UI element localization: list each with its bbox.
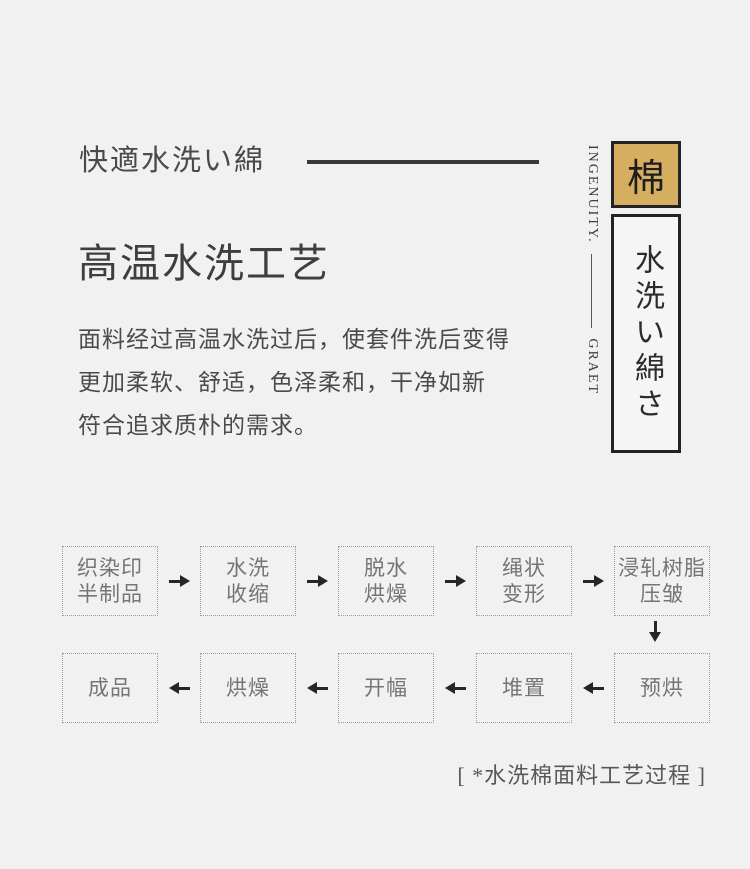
arrow-left-icon — [434, 682, 476, 694]
flow-step-line: 成品 — [88, 675, 132, 701]
flow-step-prebake: 预烘 — [614, 653, 710, 723]
flow-step-line: 烘燥 — [364, 581, 408, 607]
arrow-shaft — [455, 687, 466, 690]
flow-step-line: 烘燥 — [226, 675, 270, 701]
flow-step-line: 压皱 — [640, 581, 684, 607]
flow-caption: [ *水洗棉面料工艺过程 ] — [0, 758, 706, 790]
paragraph-line-3: 符合追求质朴的需求。 — [78, 404, 510, 447]
flow-step-resin-crease: 浸轧树脂 压皱 — [614, 546, 710, 616]
flow-step-dewater-dry: 脱水 烘燥 — [338, 546, 434, 616]
flow-step-wash-shrink: 水洗 收缩 — [200, 546, 296, 616]
vertical-label-text: 水洗い綿さ — [624, 244, 668, 424]
arrow-shaft — [445, 580, 456, 583]
arrow-head — [318, 575, 328, 587]
arrow-shaft — [583, 580, 594, 583]
tagline-word-graet: GRAET — [584, 338, 600, 395]
flow-step-finished-product: 成品 — [62, 653, 158, 723]
tagline-divider-line — [592, 254, 593, 329]
cotton-badge: 棉 — [611, 141, 681, 208]
arrow-right-icon — [572, 575, 614, 587]
vertical-label-box: 水洗い綿さ — [611, 214, 681, 453]
vertical-english-tagline: INGENUITY. GRAET — [582, 145, 602, 395]
arrow-head — [594, 575, 604, 587]
flow-step-line: 变形 — [502, 581, 546, 607]
product-detail-section: 快適水洗い綿 INGENUITY. GRAET 棉 水洗い綿さ 高温水洗工艺 面… — [0, 0, 750, 869]
section-subtitle-japanese: 快適水洗い綿 — [79, 144, 265, 178]
process-flow-top-row: 织染印 半制品 水洗 收缩 脱水 烘燥 绳状 变形 浸轧树脂 压皱 — [62, 546, 710, 616]
arrow-left-icon — [158, 682, 200, 694]
arrow-left-icon — [572, 682, 614, 694]
flow-step-line: 绳状 — [502, 555, 546, 581]
arrow-shaft — [169, 580, 180, 583]
arrow-head — [583, 682, 593, 694]
arrow-right-icon — [158, 575, 200, 587]
description-paragraph: 面料经过高温水洗过后，使套件洗后变得 更加柔软、舒适，色泽柔和，干净如新 符合追… — [78, 318, 510, 447]
arrow-head — [180, 575, 190, 587]
arrow-shaft — [307, 580, 318, 583]
flow-step-line: 堆置 — [502, 675, 546, 701]
tagline-word-ingenuity: INGENUITY. — [584, 145, 600, 244]
arrow-head — [445, 682, 455, 694]
cotton-badge-char: 棉 — [627, 147, 665, 202]
flow-step-open-width: 开幅 — [338, 653, 434, 723]
arrow-head — [456, 575, 466, 587]
arrow-head — [169, 682, 179, 694]
flow-step-line: 收缩 — [226, 581, 270, 607]
flow-step-line: 浸轧树脂 — [618, 555, 706, 581]
arrow-head — [307, 682, 317, 694]
flow-step-semi-finished: 织染印 半制品 — [62, 546, 158, 616]
flow-step-line: 织染印 — [77, 555, 143, 581]
arrow-down-icon — [649, 621, 661, 642]
paragraph-line-1: 面料经过高温水洗过后，使套件洗后变得 — [78, 318, 510, 361]
paragraph-line-2: 更加柔软、舒适，色泽柔和，干净如新 — [78, 361, 510, 404]
section-title: 高温水洗工艺 — [78, 240, 330, 288]
arrow-shaft — [593, 687, 604, 690]
flow-step-line: 预烘 — [640, 675, 684, 701]
flow-step-rope-deform: 绳状 变形 — [476, 546, 572, 616]
arrow-right-icon — [296, 575, 338, 587]
decorative-rule — [307, 160, 539, 164]
flow-step-drying: 烘燥 — [200, 653, 296, 723]
flow-step-stacking: 堆置 — [476, 653, 572, 723]
arrow-head — [649, 632, 661, 642]
arrow-right-icon — [434, 575, 476, 587]
flow-step-line: 开幅 — [364, 675, 408, 701]
flow-step-line: 水洗 — [226, 555, 270, 581]
arrow-shaft — [317, 687, 328, 690]
arrow-shaft — [179, 687, 190, 690]
arrow-left-icon — [296, 682, 338, 694]
flow-step-line: 半制品 — [77, 581, 143, 607]
process-flow-bottom-row: 成品 烘燥 开幅 堆置 预烘 — [62, 653, 710, 723]
flow-step-line: 脱水 — [364, 555, 408, 581]
arrow-shaft — [654, 621, 657, 632]
